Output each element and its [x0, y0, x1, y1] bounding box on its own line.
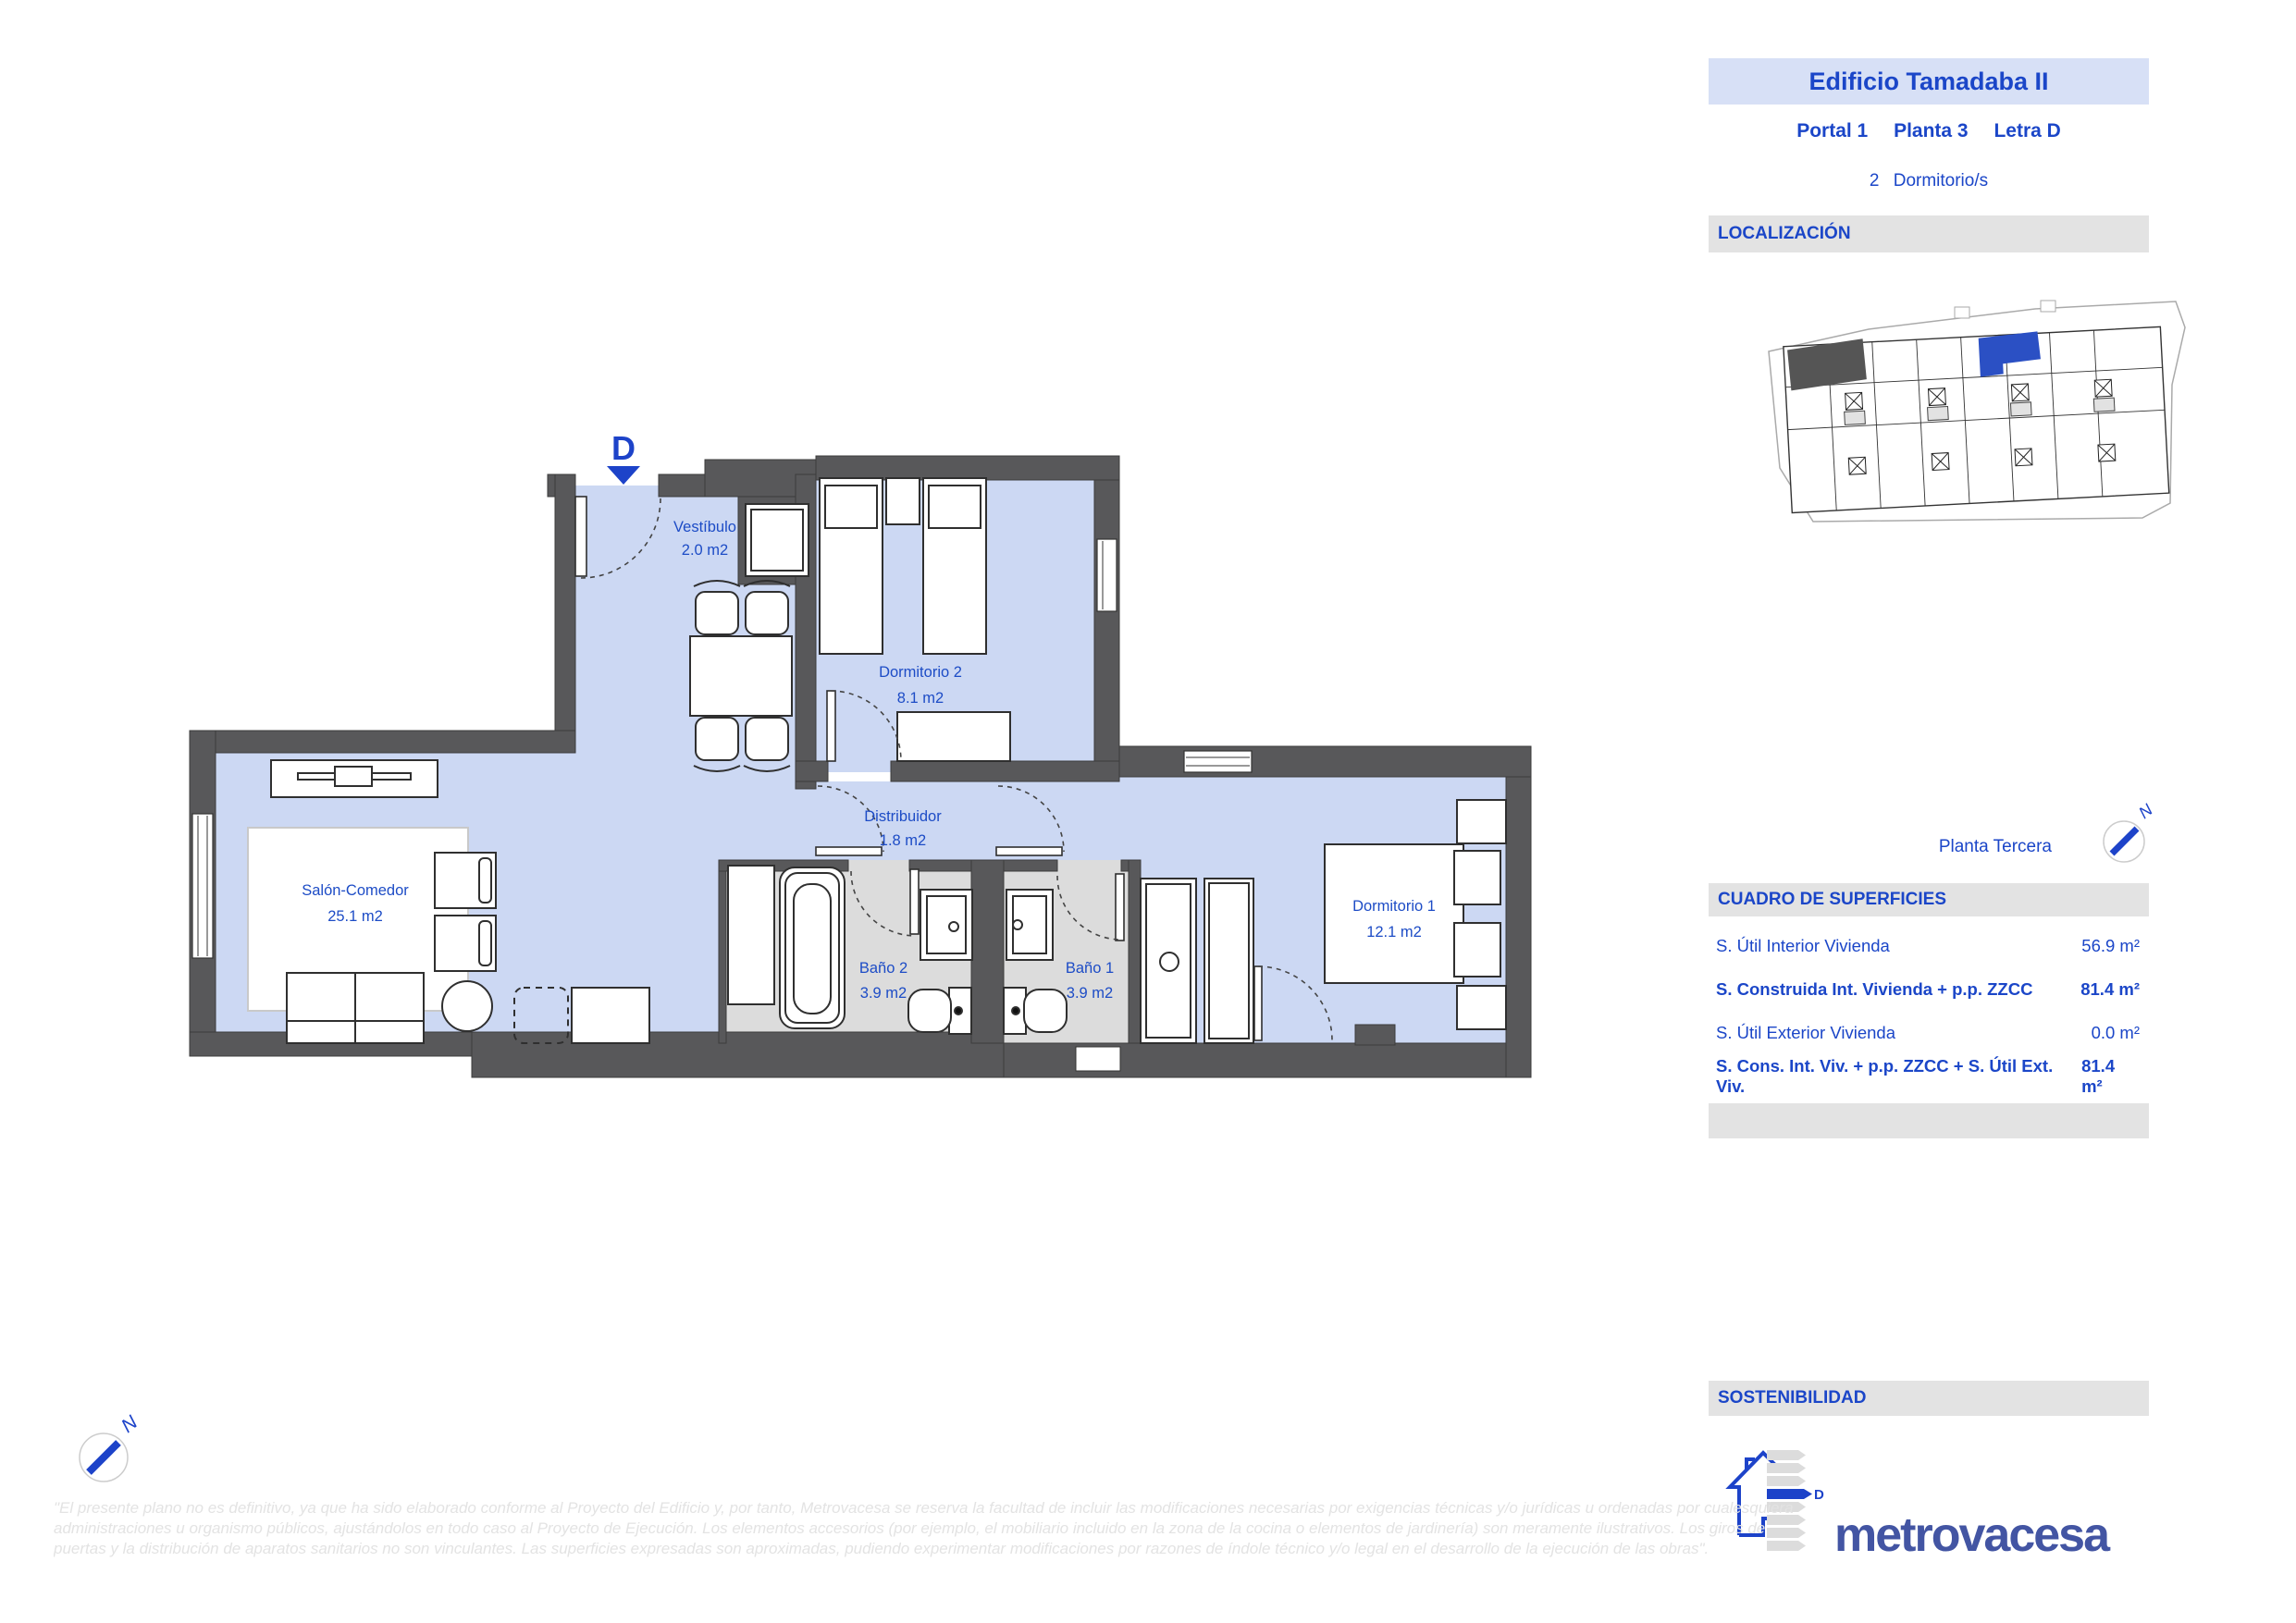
portal-label: Portal 1 — [1796, 120, 1868, 141]
toilet — [1004, 988, 1067, 1034]
closet — [728, 866, 774, 1004]
sustainability-title: SOSTENIBILIDAD — [1709, 1388, 1866, 1408]
unit-identifier: Portal 1 Planta 3 Letra D — [1709, 120, 2149, 142]
door-leaf — [827, 691, 835, 761]
bedrooms-line: 2 Dormitorio/s — [1709, 171, 2149, 191]
metrovacesa-logo: metrovacesa — [1834, 1507, 2108, 1563]
localizacion-section-header: LOCALIZACIÓN — [1709, 215, 2149, 252]
surface-row: S. Cons. Int. Viv. + p.p. ZZCC + S. Útil… — [1709, 1063, 2149, 1090]
single-bed — [820, 478, 883, 654]
building-block — [1784, 323, 2169, 512]
window — [192, 814, 213, 958]
dresser — [897, 712, 1010, 761]
sink — [1006, 890, 1053, 960]
surfaces-title: CUADRO DE SUPERFICIES — [1709, 890, 1946, 910]
sink — [920, 890, 972, 960]
bedrooms-label: Dormitorio/s — [1894, 171, 1988, 191]
closet — [746, 504, 809, 576]
sofa — [287, 973, 424, 1043]
sustainability-section-header: SOSTENIBILIDAD — [1709, 1381, 2149, 1416]
legal-disclaimer: "El presente plano no es definitivo, ya … — [54, 1498, 1816, 1559]
north-label: N — [117, 1411, 142, 1437]
building-title: Edificio Tamadaba II — [1808, 68, 2048, 96]
location-map — [1758, 294, 2192, 525]
floor-name: Planta Tercera — [1758, 837, 2052, 857]
down-arrow-icon — [607, 466, 640, 485]
surface-row-value: 81.4 m² — [2080, 979, 2149, 1000]
room-area: 25.1 m2 — [327, 908, 383, 925]
unit-letter-marker: D — [607, 429, 640, 485]
room-area: 1.8 m2 — [880, 832, 926, 849]
room-label: Dormitorio 2 — [879, 664, 962, 681]
surface-row-label: S. Útil Exterior Vivienda — [1709, 1023, 1895, 1043]
nightstand — [1457, 986, 1506, 1029]
shower — [1141, 879, 1196, 1043]
surfaces-section-header: CUADRO DE SUPERFICIES — [1709, 883, 2149, 916]
room-area: 3.9 m2 — [860, 985, 907, 1002]
surface-row-label: S. Construida Int. Vivienda + p.p. ZZCC — [1709, 979, 2032, 1000]
localizacion-title: LOCALIZACIÓN — [1709, 224, 1851, 244]
surface-row-label: S. Útil Interior Vivienda — [1709, 936, 1890, 956]
empty-divider-bar — [1709, 1103, 2149, 1138]
shaft — [1076, 1047, 1120, 1071]
room-label: Baño 1 — [1066, 960, 1114, 977]
door-leaf — [910, 869, 919, 934]
armchair — [435, 853, 496, 908]
bedrooms-count: 2 — [1870, 171, 1880, 191]
room-label: Dormitorio 1 — [1352, 898, 1436, 915]
wardrobe — [1204, 879, 1253, 1043]
room-area: 8.1 m2 — [897, 690, 944, 707]
disclaimer-line: "El presente plano no es definitivo, ya … — [54, 1498, 1816, 1518]
disclaimer-line: administraciones u organismo públicos, a… — [54, 1518, 1816, 1539]
toilet — [908, 988, 971, 1034]
north-label: N — [2135, 800, 2156, 822]
surface-row-label: S. Cons. Int. Viv. + p.p. ZZCC + S. Útil… — [1709, 1056, 2081, 1097]
bathtub — [780, 867, 845, 1028]
door-leaf — [1116, 874, 1124, 941]
floorplan-sheet: { "header": { "building": "Edificio Tama… — [0, 0, 2296, 1623]
planta-label: Planta 3 — [1894, 120, 1969, 141]
closet — [1457, 800, 1506, 843]
room-label: Baño 2 — [859, 960, 907, 977]
nightstand — [886, 478, 920, 524]
surface-row-value: 0.0 m² — [2092, 1023, 2149, 1043]
entrance-door-leaf — [575, 497, 586, 576]
site-bump — [1955, 307, 1969, 318]
surface-row-value: 56.9 m² — [2081, 936, 2149, 956]
room-area: 2.0 m2 — [682, 542, 728, 559]
surface-row: S. Construida Int. Vivienda + p.p. ZZCC … — [1709, 976, 2149, 1003]
north-compass-icon: N — [65, 1408, 167, 1509]
room-label: Vestíbulo — [673, 519, 736, 535]
surface-row: S. Útil Interior Vivienda 56.9 m² — [1709, 932, 2149, 960]
north-compass-icon: N — [2092, 797, 2176, 880]
cabinet — [572, 988, 649, 1043]
window — [1097, 539, 1117, 611]
disclaimer-line: puertas y la distribución de aparatos sa… — [54, 1539, 1816, 1559]
unit-letter: D — [611, 429, 636, 467]
side-table — [442, 981, 492, 1031]
room-area: 12.1 m2 — [1366, 924, 1422, 941]
surface-row: S. Útil Exterior Vivienda 0.0 m² — [1709, 1019, 2149, 1047]
window — [1184, 751, 1252, 772]
floor-plan: D Vestíbulo 2.0 m2 Dormitorio 2 8.1 m2 D… — [176, 416, 1545, 1100]
room-label: Distribuidor — [864, 808, 942, 825]
surface-row-value: 81.4 m² — [2081, 1056, 2149, 1097]
door-leaf — [816, 847, 882, 855]
room-area: 3.9 m2 — [1067, 985, 1113, 1002]
room-label: Salón-Comedor — [302, 882, 409, 899]
armchair — [435, 916, 496, 971]
site-bump — [2041, 301, 2055, 312]
building-title-bar: Edificio Tamadaba II — [1709, 58, 2149, 105]
single-bed — [923, 478, 986, 654]
letra-label: Letra D — [1994, 120, 2060, 141]
door-leaf — [996, 847, 1062, 855]
tv-sideboard — [271, 760, 438, 797]
door-leaf — [1254, 966, 1262, 1040]
